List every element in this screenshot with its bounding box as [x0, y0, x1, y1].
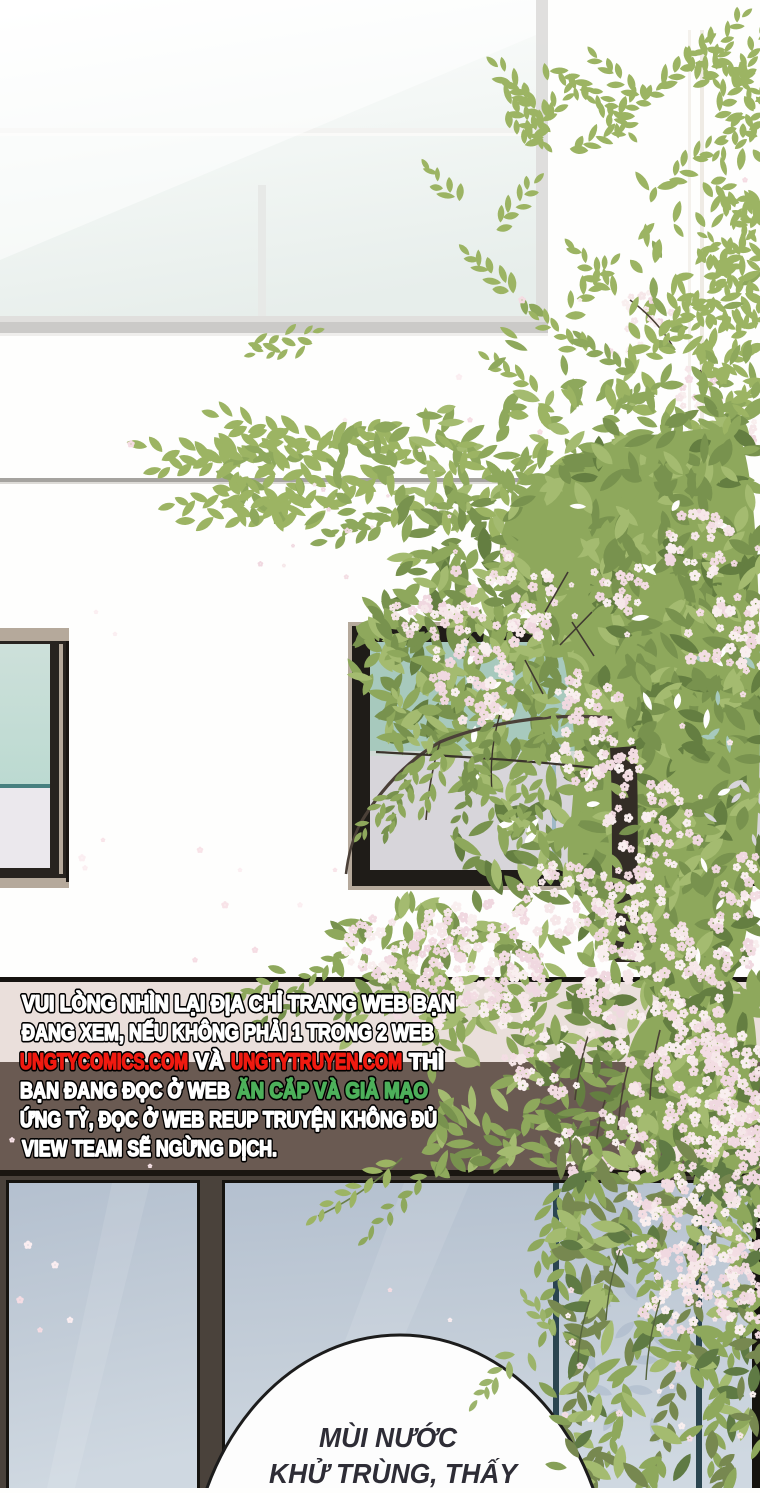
svg-text:KHỬ TRÙNG, THẤY: KHỬ TRÙNG, THẤY	[269, 1457, 519, 1488]
svg-text:VIEW TEAM SẼ NGỪNG DỊCH.: VIEW TEAM SẼ NGỪNG DỊCH.	[22, 1136, 277, 1161]
svg-text:THÌ: THÌ	[409, 1049, 444, 1074]
svg-text:UNGTYCOMICS.COM: UNGTYCOMICS.COM	[20, 1049, 188, 1074]
svg-text:ĂN CẮP VÀ GIẢ MẠO: ĂN CẮP VÀ GIẢ MẠO	[237, 1078, 428, 1103]
svg-text:VUI LÒNG NHÌN LẠI ĐỊA CHỈ TRAN: VUI LÒNG NHÌN LẠI ĐỊA CHỈ TRANG WEB BẠN	[22, 991, 455, 1016]
svg-text:VÀ: VÀ	[195, 1049, 224, 1074]
svg-text:MÙI NƯỚC: MÙI NƯỚC	[319, 1422, 458, 1453]
svg-text:BẠN ĐANG ĐỌC Ở WEB: BẠN ĐANG ĐỌC Ở WEB	[20, 1078, 230, 1103]
svg-text:ỨNG TỶ, ĐỌC Ở WEB REUP TRUYỆN: ỨNG TỶ, ĐỌC Ở WEB REUP TRUYỆN KHÔNG ĐỦ	[20, 1107, 437, 1132]
svg-text:UNGTYTRUYEN.COM: UNGTYTRUYEN.COM	[231, 1049, 402, 1074]
svg-text:ĐANG XEM, NẾU KHÔNG PHẢI 1 TRO: ĐANG XEM, NẾU KHÔNG PHẢI 1 TRONG 2 WEB	[22, 1020, 434, 1045]
